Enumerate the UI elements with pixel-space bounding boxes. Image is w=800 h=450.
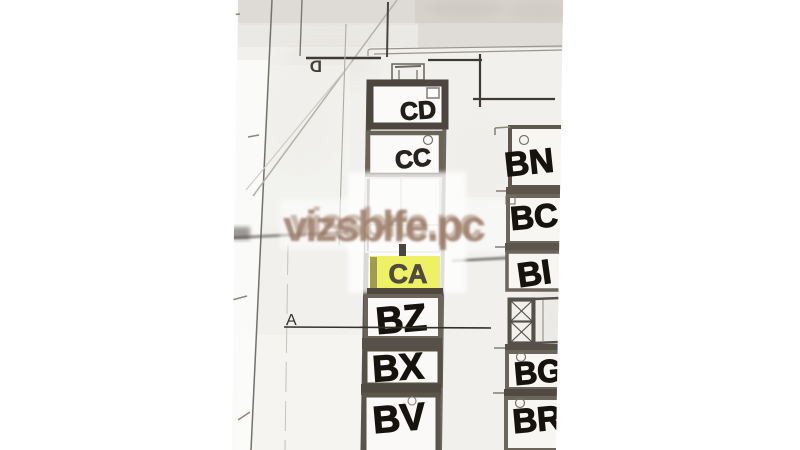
svg-text:BG: BG — [513, 352, 564, 392]
svg-text:CD: CD — [399, 96, 437, 126]
svg-text:BR: BR — [511, 399, 563, 441]
svg-text:BN: BN — [503, 142, 556, 185]
svg-text:BX: BX — [371, 345, 425, 390]
svg-text:BZ: BZ — [374, 297, 428, 343]
svg-text:D: D — [310, 57, 322, 76]
svg-text:CC: CC — [394, 143, 433, 175]
svg-text:CA: CA — [389, 259, 428, 289]
svg-text:BC: BC — [509, 196, 560, 237]
svg-text:vissbıte.pc: vissbıte.pc — [290, 199, 482, 246]
svg-text:A: A — [286, 312, 297, 329]
svg-text:BI: BI — [515, 253, 554, 295]
svg-text:BV: BV — [371, 396, 428, 442]
